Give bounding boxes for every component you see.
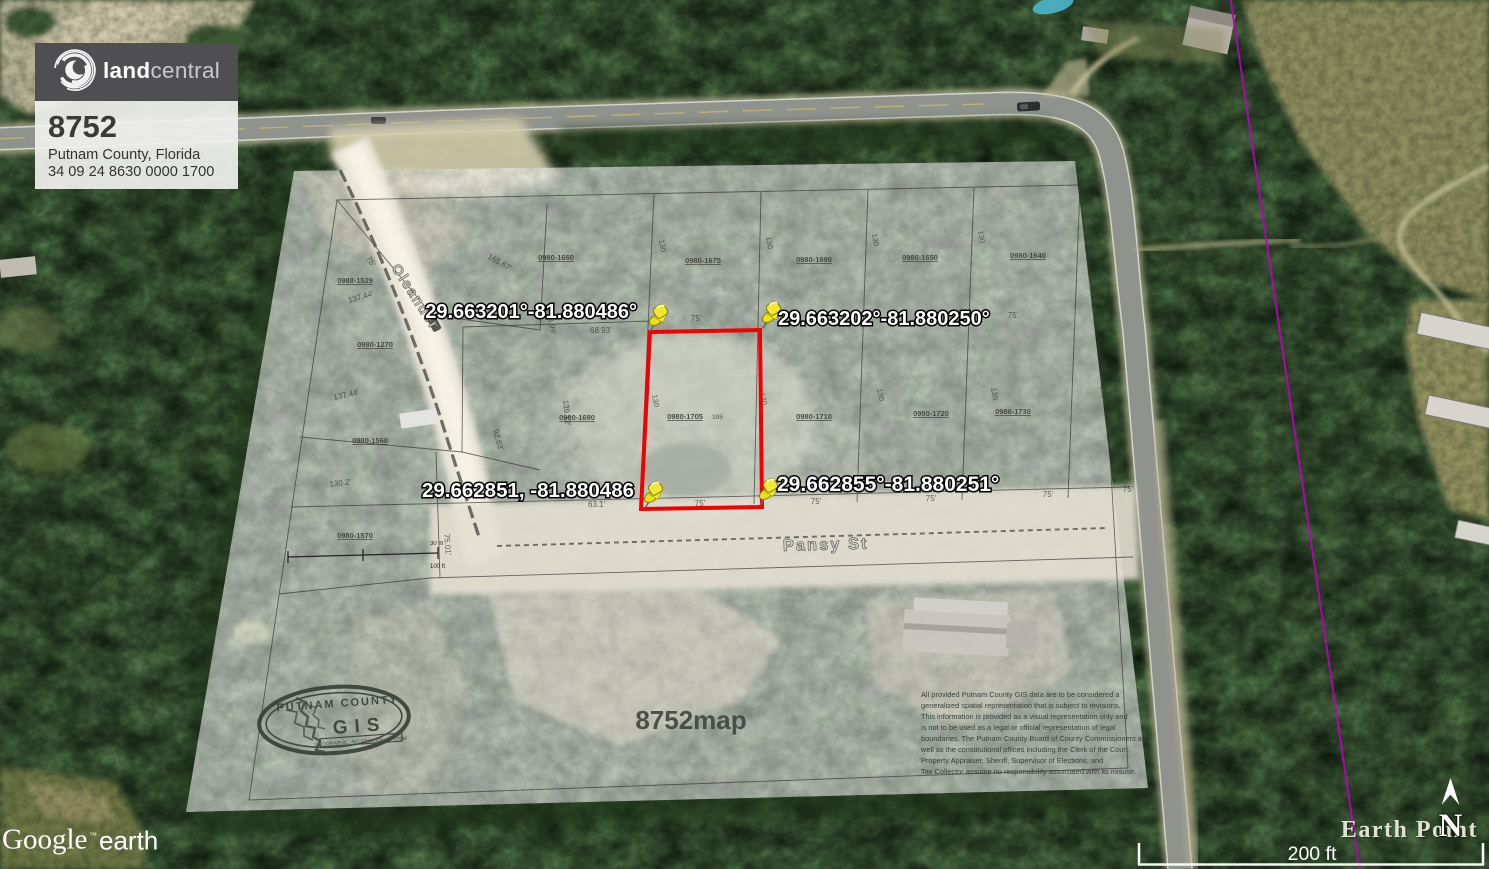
svg-text:Tax Collector assume no respon: Tax Collector assume no responsibility a… (921, 767, 1136, 776)
svg-text:0980-1560: 0980-1560 (352, 436, 388, 445)
svg-text:75.01': 75.01' (442, 533, 453, 556)
svg-text:0980-1710: 0980-1710 (796, 412, 832, 421)
svg-text:Google: Google (2, 824, 87, 856)
svg-text:Putnam County, Florida: Putnam County, Florida (48, 147, 201, 163)
svg-text:0980-1640: 0980-1640 (1010, 251, 1046, 260)
svg-text:0980-1675: 0980-1675 (685, 256, 721, 265)
svg-text:29.662855°-81.880251°: 29.662855°-81.880251° (777, 473, 999, 496)
svg-text:earth: earth (99, 826, 158, 856)
svg-text:0980-1660: 0980-1660 (538, 253, 574, 262)
svg-text:0980-1650: 0980-1650 (902, 253, 938, 262)
svg-text:Property Appraiser, Sheriff, S: Property Appraiser, Sheriff, Supervisor … (921, 756, 1103, 765)
svg-text:boundaries. The Putnam County: boundaries. The Putnam County Board of C… (921, 734, 1146, 743)
svg-text:29.662851, -81.880486: 29.662851, -81.880486 (422, 479, 634, 502)
svg-text:75': 75' (1123, 485, 1134, 494)
svg-text:75': 75' (1008, 311, 1019, 320)
svg-text:100 ft: 100 ft (430, 564, 445, 570)
svg-text:0980-1720: 0980-1720 (913, 409, 949, 418)
svg-text:0980-1570: 0980-1570 (337, 531, 373, 540)
svg-text:29.663202°-81.880250°: 29.663202°-81.880250° (778, 308, 990, 330)
svg-text:75': 75' (691, 314, 702, 323)
svg-text:is not to be used as a legal o: is not to be used as a legal or official… (921, 723, 1116, 732)
svg-text:landcentral: landcentral (103, 58, 220, 83)
svg-text:8752: 8752 (48, 109, 117, 144)
svg-text:29.663201°-81.880486°: 29.663201°-81.880486° (425, 301, 637, 323)
svg-text:8752map: 8752map (635, 705, 746, 735)
svg-text:0988-1529: 0988-1529 (337, 276, 373, 285)
svg-text:0980-1705: 0980-1705 (667, 412, 703, 421)
svg-text:34 09 24 8630 0000 1700: 34 09 24 8630 0000 1700 (48, 164, 214, 180)
svg-text:well as the constitutional off: well as the constitutional offices inclu… (920, 745, 1130, 754)
svg-text:75': 75' (1043, 490, 1054, 499)
svg-text:0980-1270: 0980-1270 (357, 340, 393, 349)
svg-text:30 m: 30 m (430, 541, 443, 547)
svg-text:0980-1690: 0980-1690 (796, 255, 832, 264)
svg-text:This information is provided a: This information is provided as a visual… (921, 712, 1128, 721)
svg-text:N: N (1439, 808, 1463, 844)
svg-text:68.93': 68.93' (590, 326, 612, 335)
svg-text:All provided Putnam County GIS: All provided Putnam County GIS data are … (921, 690, 1120, 699)
svg-text:™: ™ (89, 831, 97, 840)
svg-text:200 ft: 200 ft (1288, 843, 1337, 865)
svg-text:generalized spatial representa: generalized spatial representation that … (921, 701, 1121, 710)
svg-text:Pansy St: Pansy St (783, 535, 869, 555)
svg-text:105: 105 (712, 414, 723, 421)
svg-text:0980-1730: 0980-1730 (995, 407, 1031, 416)
svg-text:75': 75' (811, 497, 822, 506)
